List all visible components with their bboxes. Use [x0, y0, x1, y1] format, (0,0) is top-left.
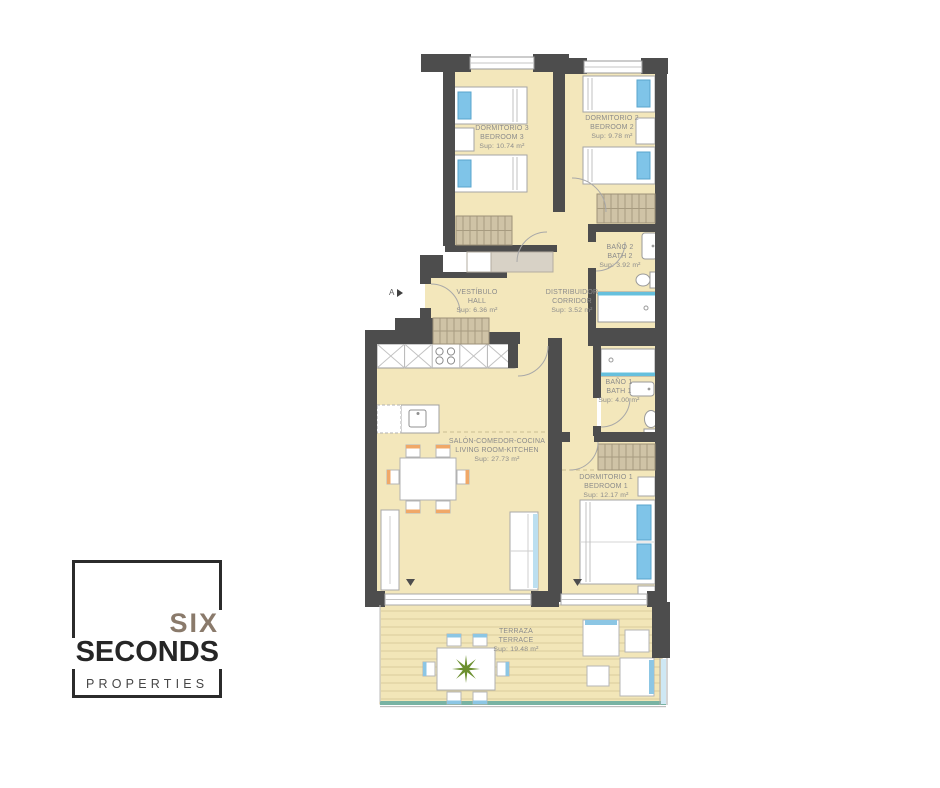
bath2-label: BAÑO 2 BATH 2 Sup: 3.92 m² [550, 243, 690, 270]
room-area: Sup: 10.74 m² [432, 142, 572, 151]
room-area: Sup: 4.00 m² [549, 396, 689, 405]
bedroom1-label: DORMITORIO 1 BEDROOM 1 Sup: 12.17 m² [536, 473, 676, 500]
terrace-label: TERRAZA TERRACE Sup: 19.48 m² [446, 627, 586, 654]
plant-icon [452, 655, 480, 683]
room-name-es: DORMITORIO 1 [536, 473, 676, 482]
section-marker-label: A [389, 288, 394, 297]
room-name-en: BATH 1 [549, 387, 689, 396]
room-area: Sup: 12.17 m² [536, 491, 676, 500]
room-name-es: TERRAZA [446, 627, 586, 636]
room-name-en: LIVING ROOM-KITCHEN [412, 446, 582, 455]
room-area: Sup: 19.48 m² [446, 645, 586, 654]
room-area: Sup: 3.52 m² [502, 306, 642, 315]
room-name-es: DORMITORIO 2 [542, 114, 682, 123]
room-name-en: BATH 2 [550, 252, 690, 261]
room-name-en: CORRIDOR [502, 297, 642, 306]
room-name-es: BAÑO 2 [550, 243, 690, 252]
room-name-en: BEDROOM 2 [542, 123, 682, 132]
section-arrow-icon [397, 289, 403, 297]
logo-word-six: SIX [159, 610, 225, 638]
bedroom2-label: DORMITORIO 2 BEDROOM 2 Sup: 9.78 m² [542, 114, 682, 141]
room-name-es: DISTRIBUIDOR [502, 288, 642, 297]
logo-word-seconds: SECONDS [66, 638, 225, 669]
section-marker-a: A [389, 288, 403, 297]
living-label: SALÓN-COMEDOR-COCINA LIVING ROOM-KITCHEN… [412, 437, 582, 464]
six-seconds-logo: SIX SECONDS PROPERTIES [72, 560, 222, 698]
bath1-label: BAÑO 1 BATH 1 Sup: 4.00 m² [549, 378, 689, 405]
room-area: Sup: 9.78 m² [542, 132, 682, 141]
floorplan-page: DORMITORIO 3 BEDROOM 3 Sup: 10.74 m² DOR… [0, 0, 940, 788]
room-area: Sup: 27.73 m² [412, 455, 582, 464]
logo-word-properties: PROPERTIES [86, 678, 208, 691]
room-name-en: BEDROOM 1 [536, 482, 676, 491]
room-name-es: SALÓN-COMEDOR-COCINA [412, 437, 582, 446]
room-area: Sup: 3.92 m² [550, 261, 690, 270]
room-name-en: TERRACE [446, 636, 586, 645]
room-name-es: BAÑO 1 [549, 378, 689, 387]
hall-wardrobe [467, 252, 553, 272]
corridor-label: DISTRIBUIDOR CORRIDOR Sup: 3.52 m² [502, 288, 642, 315]
